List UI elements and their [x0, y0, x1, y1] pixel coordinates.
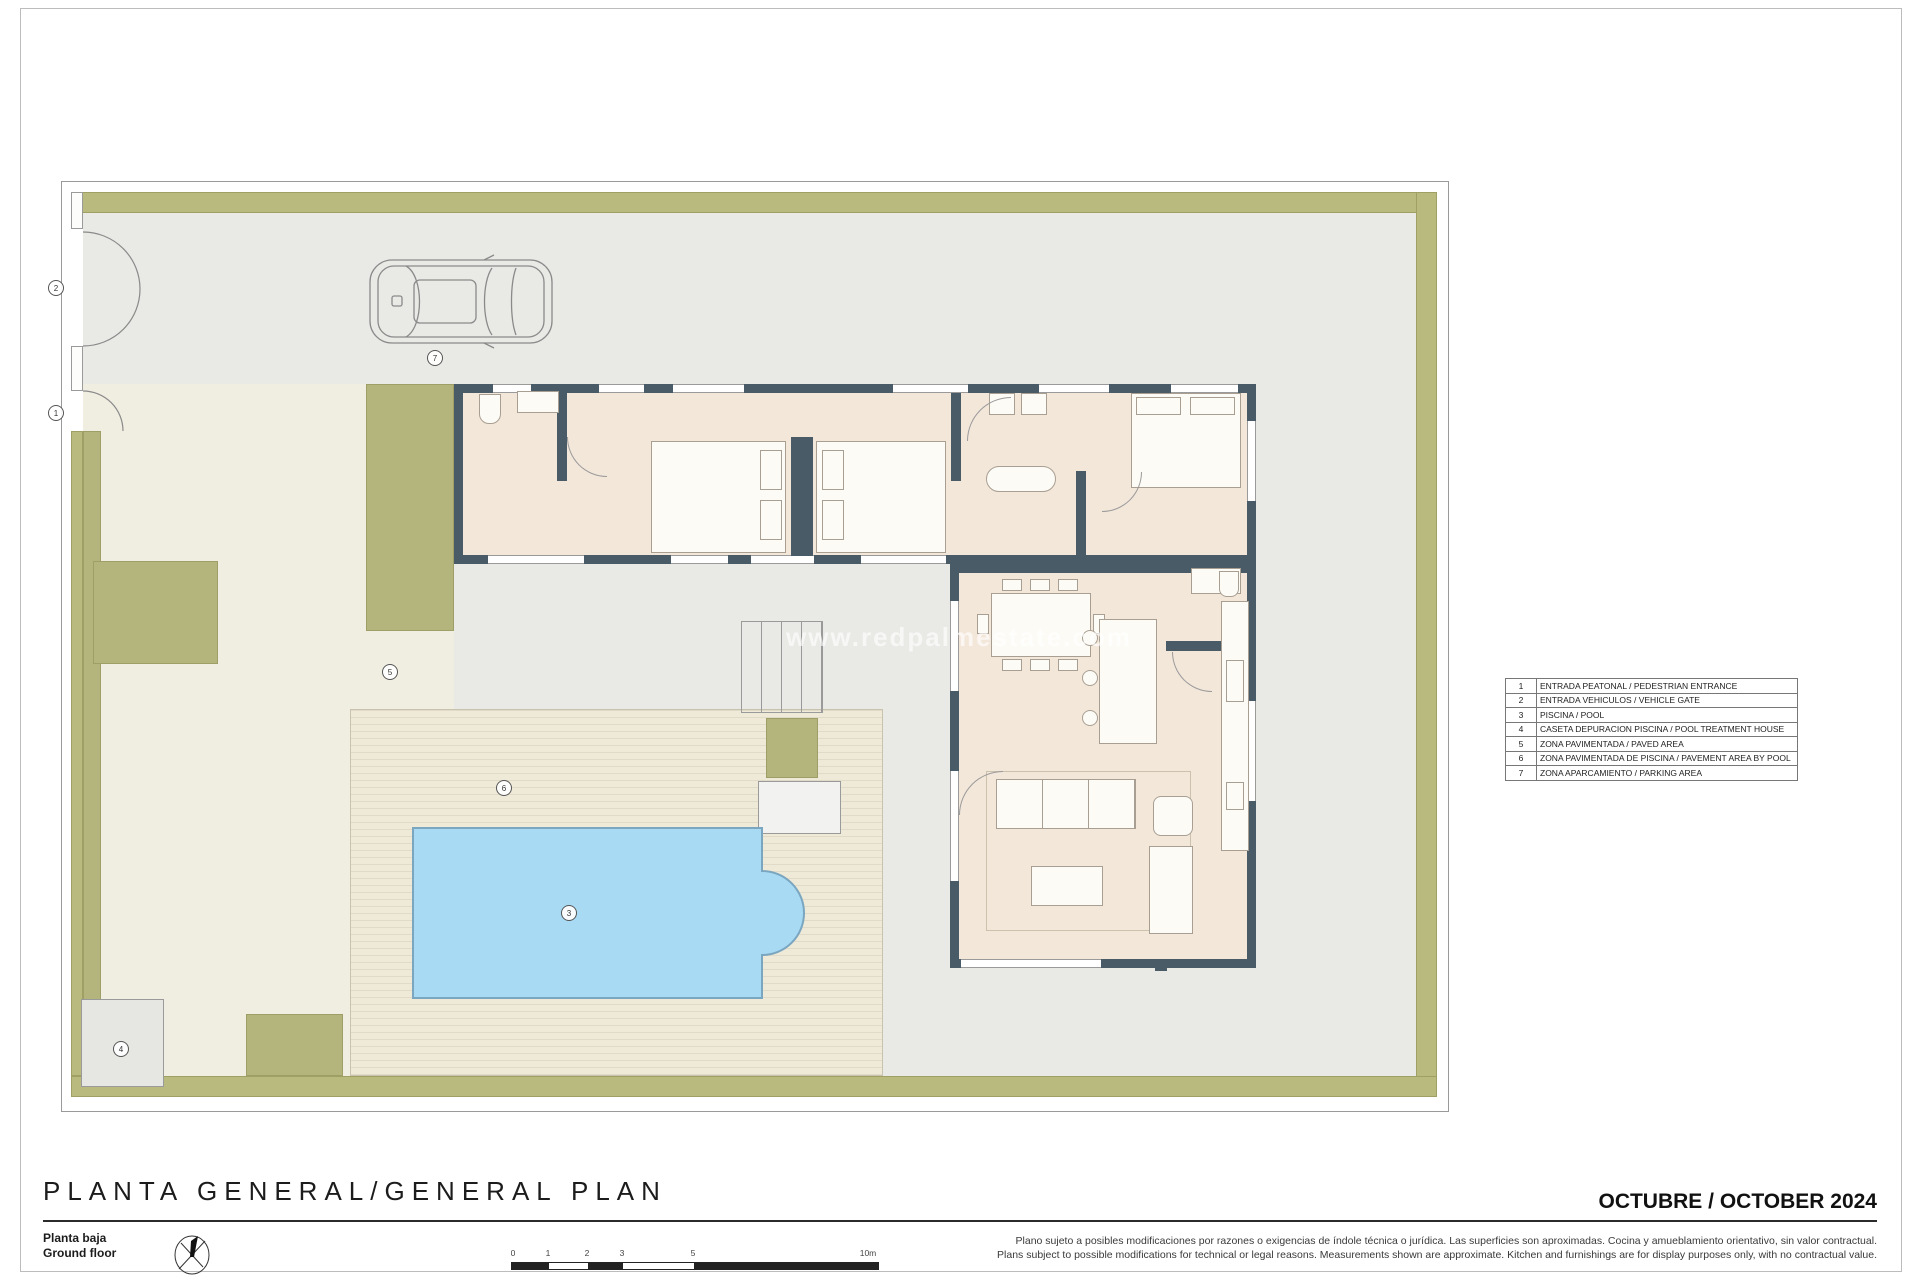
chair — [1058, 659, 1078, 671]
window — [599, 384, 644, 393]
plan-sheet: 2 1 7 5 6 3 4 www.redpalmestate.com 1ENT… — [0, 0, 1920, 1280]
vanity-sink — [1021, 393, 1047, 415]
grass-patch — [366, 384, 454, 631]
chair — [1002, 579, 1022, 591]
legend-row: 4CASETA DEPURACION PISCINA / POOL TREATM… — [1506, 722, 1798, 737]
legend-row: 5ZONA PAVIMENTADA / PAVED AREA — [1506, 737, 1798, 752]
grass-strip-west — [83, 431, 101, 1076]
legend-table: 1ENTRADA PEATONAL / PEDESTRIAN ENTRANCE … — [1505, 678, 1798, 781]
marker-parking: 7 — [427, 350, 443, 366]
toilet — [479, 394, 501, 424]
legend-row: 6ZONA PAVIMENTADA DE PISCINA / PAVEMENT … — [1506, 751, 1798, 766]
legend-row: 7ZONA APARCAMIENTO / PARKING AREA — [1506, 766, 1798, 781]
scale-label: 5 — [691, 1248, 696, 1258]
sofa — [996, 779, 1136, 829]
pillow — [760, 500, 782, 540]
plan-title: PLANTA GENERAL/GENERAL PLAN — [43, 1176, 667, 1207]
interior-wall — [1076, 471, 1086, 556]
window — [861, 555, 946, 564]
marker-treatment-house: 4 — [113, 1041, 129, 1057]
floor-label: Planta baja Ground floor — [43, 1231, 116, 1261]
north-arrow-icon — [168, 1230, 216, 1278]
watermark: www.redpalmestate.com — [579, 622, 1339, 653]
parking-area — [83, 213, 1416, 384]
chair — [1058, 579, 1078, 591]
interior-wall — [951, 393, 961, 481]
hedge-bottom — [71, 1076, 1437, 1097]
scale-label: 3 — [620, 1248, 625, 1258]
window — [751, 555, 814, 564]
armchair — [1153, 796, 1193, 836]
planter — [766, 718, 818, 778]
window — [673, 384, 744, 393]
disclaimer-en: Plans subject to possible modifications … — [997, 1248, 1877, 1262]
marker-paved-area: 5 — [382, 664, 398, 680]
kitchen-sink — [1226, 782, 1244, 810]
window — [1171, 384, 1238, 393]
hob — [1226, 660, 1244, 702]
legend-row: 1ENTRADA PEATONAL / PEDESTRIAN ENTRANCE — [1506, 679, 1798, 694]
grass-patch — [93, 561, 218, 664]
chaise — [1149, 846, 1193, 934]
plan-date: OCTUBRE / OCTOBER 2024 — [1598, 1190, 1877, 1214]
chair — [1002, 659, 1022, 671]
scale-label: 10m — [860, 1248, 877, 1258]
scale-label: 2 — [585, 1248, 590, 1258]
marker-pool-deck: 6 — [496, 780, 512, 796]
window — [950, 771, 959, 881]
pillow — [1136, 397, 1181, 415]
pillow — [822, 450, 844, 490]
hedge-top — [71, 192, 1437, 213]
hedge-left — [71, 431, 83, 1076]
disclaimer: Plano sujeto a posibles modificaciones p… — [997, 1234, 1877, 1262]
scale-bar-track — [511, 1262, 879, 1270]
stool — [1082, 670, 1098, 686]
window — [488, 555, 584, 564]
marker-vehicle-gate: 2 — [48, 280, 64, 296]
car-icon — [366, 254, 556, 349]
interior-wall — [791, 437, 813, 556]
site-plan: 2 1 7 5 6 3 4 www.redpalmestate.com — [61, 181, 1449, 1112]
window — [1247, 421, 1256, 501]
pillow — [822, 500, 844, 540]
scale-label: 0 — [511, 1248, 516, 1258]
disclaimer-es: Plano sujeto a posibles modificaciones p… — [997, 1234, 1877, 1248]
toilet — [1219, 571, 1239, 597]
sink — [517, 391, 559, 413]
window — [1039, 384, 1109, 393]
chair — [1030, 579, 1050, 591]
pillow — [1190, 397, 1235, 415]
grass-patch — [246, 1014, 343, 1076]
gate-swings — [71, 222, 221, 452]
window — [671, 555, 728, 564]
floor-label-en: Ground floor — [43, 1246, 116, 1261]
terrace-door — [961, 959, 1101, 968]
marker-pool: 3 — [561, 905, 577, 921]
hedge-right — [1416, 192, 1437, 1097]
scale-label: 1 — [546, 1248, 551, 1258]
swimming-pool — [410, 825, 820, 1005]
marker-pedestrian-entrance: 1 — [48, 405, 64, 421]
scale-bar: 0 1 2 3 5 10m — [511, 1248, 881, 1274]
title-rule — [43, 1220, 1877, 1222]
floor-label-es: Planta baja — [43, 1231, 116, 1246]
legend-row: 3PISCINA / POOL — [1506, 708, 1798, 723]
stool — [1082, 710, 1098, 726]
window — [893, 384, 968, 393]
pillow — [760, 450, 782, 490]
legend-row: 2ENTRADA VEHICULOS / VEHICLE GATE — [1506, 693, 1798, 708]
chair — [1030, 659, 1050, 671]
bathtub — [986, 466, 1056, 492]
coffee-table — [1031, 866, 1103, 906]
